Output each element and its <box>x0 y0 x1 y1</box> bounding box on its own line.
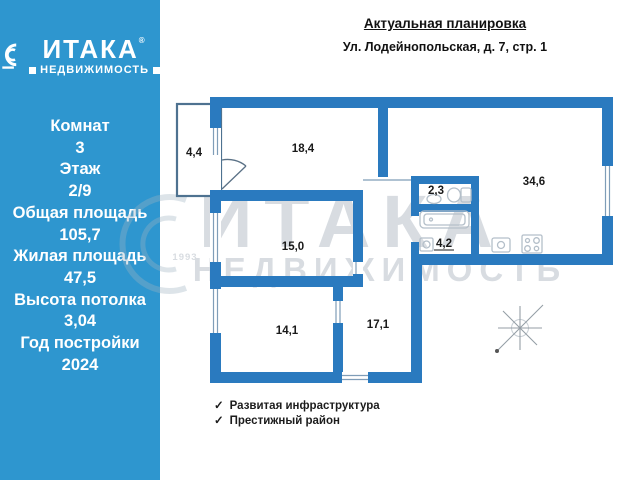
watermark-subtitle: НЕДВИЖИМОСТЬ <box>193 251 568 288</box>
plan-header: Актуальная планировка Ул. Лодейнопольска… <box>280 16 610 54</box>
registered-mark: ® <box>139 37 147 45</box>
room-area-label-kitchen-living: 34,6 <box>523 176 545 188</box>
door-arc <box>222 159 246 189</box>
room-area-label-room-18: 18,4 <box>292 143 315 155</box>
compass-icon <box>495 305 543 353</box>
check-icon: ✓ <box>214 399 224 414</box>
banner-square-right <box>153 67 160 74</box>
washing-machine-icon <box>420 238 433 251</box>
stat-label: Комнат <box>0 116 160 138</box>
room-area-label-room-14: 14,1 <box>276 325 299 337</box>
brand-subtitle-label: НЕДВИЖИМОСТЬ <box>40 64 149 76</box>
features-list: ✓ Развитая инфраструктура ✓ Престижный р… <box>214 399 380 428</box>
watermark-year: 1993 <box>172 252 197 263</box>
page-title: Актуальная планировка <box>280 16 610 31</box>
brand-name: ИТАКА® <box>42 36 146 62</box>
feature-item: ✓ Развитая инфраструктура <box>214 399 380 414</box>
stat-value: 3 <box>0 138 160 160</box>
sidebar: ИТАКА® НЕДВИЖИМОСТЬ Комнат 3 Этаж 2/9 Об… <box>0 0 160 480</box>
stat-label: Общая площадь <box>0 203 160 225</box>
stat-label: Год постройки <box>0 333 160 355</box>
check-icon: ✓ <box>214 414 224 429</box>
feature-text: Престижный район <box>230 414 340 429</box>
address-line: Ул. Лодейнопольская, д. 7, стр. 1 <box>280 40 610 54</box>
bathtub-icon <box>420 211 469 228</box>
windows <box>210 128 613 383</box>
feature-text: Развитая инфраструктура <box>230 399 380 414</box>
room-area-label-room-17: 17,1 <box>367 319 390 331</box>
stat-label: Высота потолка <box>0 290 160 312</box>
room-labels: 4,4 18,4 34,6 2,3 4,2 15,0 14,1 17,1 <box>186 143 545 337</box>
watermark-reg: ® <box>468 193 479 210</box>
stat-value: 2024 <box>0 355 160 377</box>
stat-label: Жилая площадь <box>0 246 160 268</box>
wc-sink-icon <box>427 195 441 204</box>
watermark-brand: ИТАКА <box>199 180 505 263</box>
stat-value: 47,5 <box>0 268 160 290</box>
stove-icon <box>522 235 542 253</box>
balcony-outline <box>177 104 221 196</box>
wave-logo-icon <box>0 33 23 79</box>
kitchen-sink-icon <box>492 238 510 252</box>
brand-subtitle: НЕДВИЖИМОСТЬ <box>29 64 160 76</box>
property-stats: Комнат 3 Этаж 2/9 Общая площадь 105,7 Жи… <box>0 116 160 376</box>
stat-value: 2/9 <box>0 181 160 203</box>
brand-label: ИТАКА <box>42 36 138 62</box>
walls <box>210 97 613 383</box>
room-area-label-wc: 2,3 <box>428 185 444 197</box>
agency-logo: ИТАКА® НЕДВИЖИМОСТЬ <box>0 33 160 79</box>
room-area-label-hall: 15,0 <box>282 241 304 253</box>
room-area-label-bathroom: 4,2 <box>436 238 452 250</box>
stat-value: 3,04 <box>0 311 160 333</box>
banner-square-left <box>29 67 36 74</box>
feature-item: ✓ Престижный район <box>214 414 380 429</box>
stat-label: Этаж <box>0 159 160 181</box>
room-area-label-balcony: 4,4 <box>186 147 203 159</box>
stat-value: 105,7 <box>0 225 160 247</box>
toilet-icon <box>448 188 472 202</box>
